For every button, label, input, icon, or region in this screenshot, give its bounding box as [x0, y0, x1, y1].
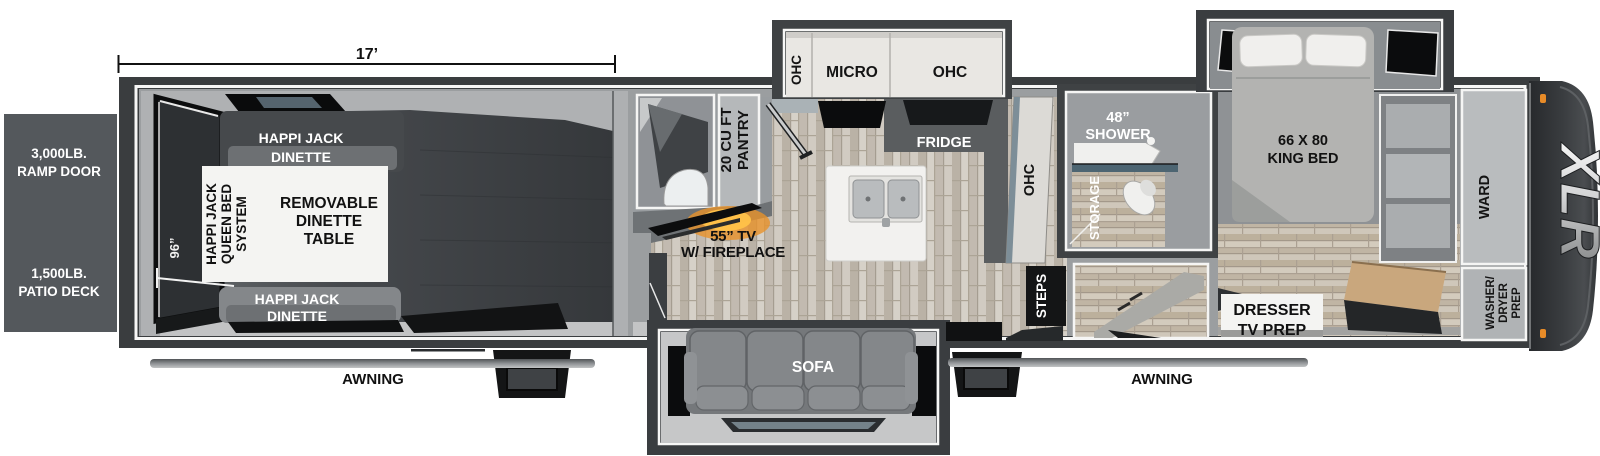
- svg-text:96”: 96”: [167, 238, 182, 259]
- svg-text:3,000LB.: 3,000LB.: [31, 146, 87, 161]
- svg-text:STEPS: STEPS: [1034, 274, 1049, 318]
- svg-text:17’: 17’: [356, 46, 378, 63]
- svg-text:WASHER/: WASHER/: [1485, 275, 1497, 329]
- svg-text:SHOWER: SHOWER: [1085, 127, 1151, 143]
- svg-text:PANTRY: PANTRY: [735, 110, 752, 170]
- svg-text:QUEEN BED: QUEEN BED: [219, 184, 234, 265]
- svg-text:OHC: OHC: [933, 64, 967, 81]
- svg-text:DINETTE: DINETTE: [296, 213, 362, 230]
- svg-text:RAMP DOOR: RAMP DOOR: [17, 164, 101, 179]
- svg-text:DINETTE: DINETTE: [267, 308, 327, 324]
- svg-text:W/ FIREPLACE: W/ FIREPLACE: [681, 244, 785, 261]
- svg-text:HAPPI JACK: HAPPI JACK: [255, 291, 340, 307]
- svg-text:DRESSER: DRESSER: [1233, 302, 1311, 319]
- svg-text:STORAGE: STORAGE: [1087, 176, 1102, 240]
- svg-text:PREP: PREP: [1511, 287, 1523, 319]
- svg-text:DRYER: DRYER: [1498, 282, 1510, 323]
- svg-text:HAPPI JACK: HAPPI JACK: [259, 130, 344, 146]
- svg-text:AWNING: AWNING: [342, 371, 404, 388]
- svg-text:20 CU FT: 20 CU FT: [718, 107, 735, 172]
- svg-text:OHC: OHC: [789, 55, 804, 85]
- svg-text:REMOVABLE: REMOVABLE: [280, 195, 378, 212]
- svg-text:55” TV: 55” TV: [710, 228, 756, 245]
- svg-text:SYSTEM: SYSTEM: [234, 196, 249, 252]
- svg-text:HAPPI JACK: HAPPI JACK: [204, 183, 219, 265]
- svg-text:48”: 48”: [1106, 110, 1129, 126]
- svg-text:66 X 80: 66 X 80: [1278, 133, 1328, 149]
- svg-text:DINETTE: DINETTE: [271, 149, 331, 165]
- svg-text:TABLE: TABLE: [304, 231, 355, 248]
- svg-text:1,500LB.: 1,500LB.: [31, 266, 87, 281]
- svg-text:AWNING: AWNING: [1131, 371, 1193, 388]
- svg-text:OHC: OHC: [1022, 163, 1038, 196]
- svg-text:XLR: XLR: [1549, 142, 1600, 260]
- svg-text:KING BED: KING BED: [1268, 151, 1339, 167]
- svg-text:SOFA: SOFA: [792, 359, 834, 376]
- svg-text:MICRO: MICRO: [826, 64, 878, 81]
- svg-text:FRIDGE: FRIDGE: [917, 135, 972, 151]
- svg-text:WARD: WARD: [1477, 175, 1493, 219]
- svg-text:TV PREP: TV PREP: [1238, 322, 1307, 339]
- svg-text:PATIO DECK: PATIO DECK: [18, 284, 100, 299]
